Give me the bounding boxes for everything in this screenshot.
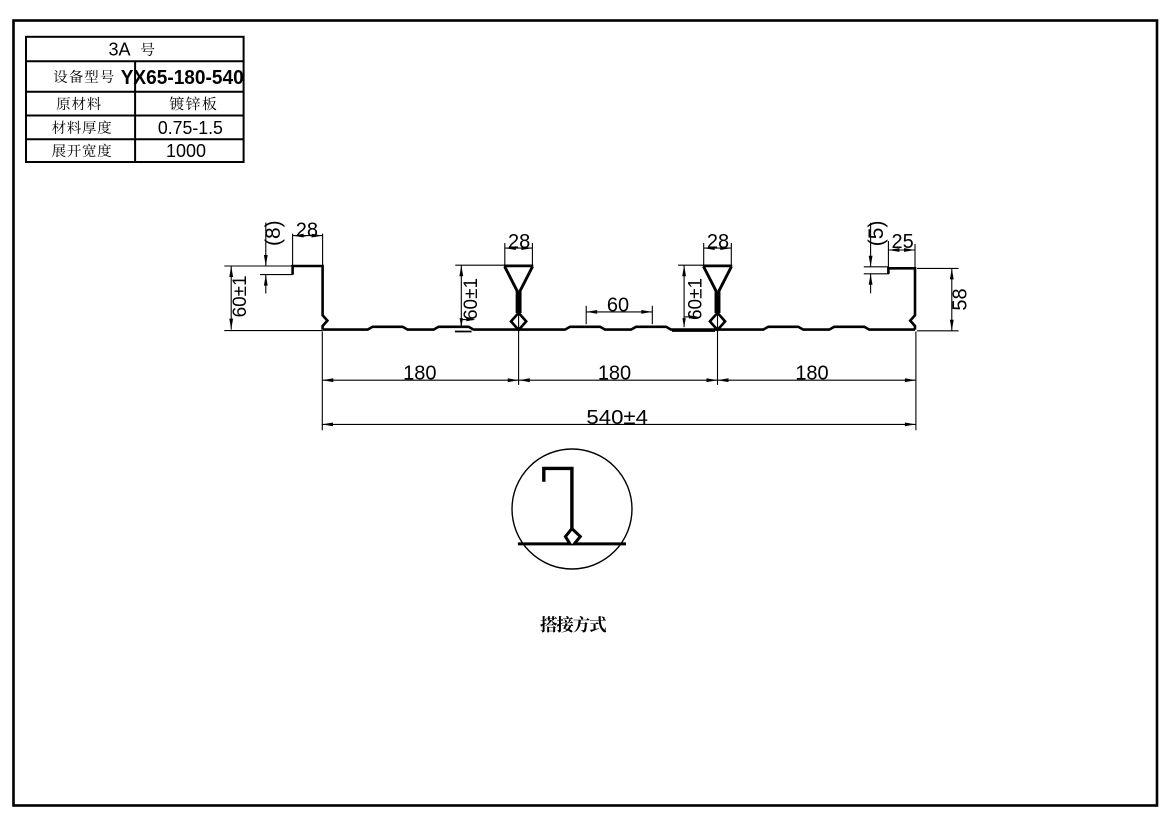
svg-text:540±4: 540±4 xyxy=(586,407,648,429)
svg-text:60±1: 60±1 xyxy=(460,278,482,320)
svg-text:YX65-180-540: YX65-180-540 xyxy=(121,67,244,89)
svg-text:3A: 3A xyxy=(108,39,130,59)
svg-text:60: 60 xyxy=(607,294,629,316)
svg-text:28: 28 xyxy=(296,219,318,241)
svg-text:28: 28 xyxy=(508,231,530,253)
svg-text:(5): (5) xyxy=(865,221,888,247)
svg-text:1000: 1000 xyxy=(166,141,206,161)
svg-text:0.75-1.5: 0.75-1.5 xyxy=(158,118,223,138)
svg-text:58: 58 xyxy=(949,288,971,310)
svg-text:180: 180 xyxy=(795,363,828,385)
svg-text:28: 28 xyxy=(707,231,729,253)
svg-text:180: 180 xyxy=(598,363,631,385)
svg-text:(8): (8) xyxy=(262,220,285,246)
svg-text:180: 180 xyxy=(403,363,436,385)
svg-text:25: 25 xyxy=(891,231,913,253)
svg-text:60±1: 60±1 xyxy=(685,278,707,320)
svg-text:60±1: 60±1 xyxy=(229,275,251,317)
